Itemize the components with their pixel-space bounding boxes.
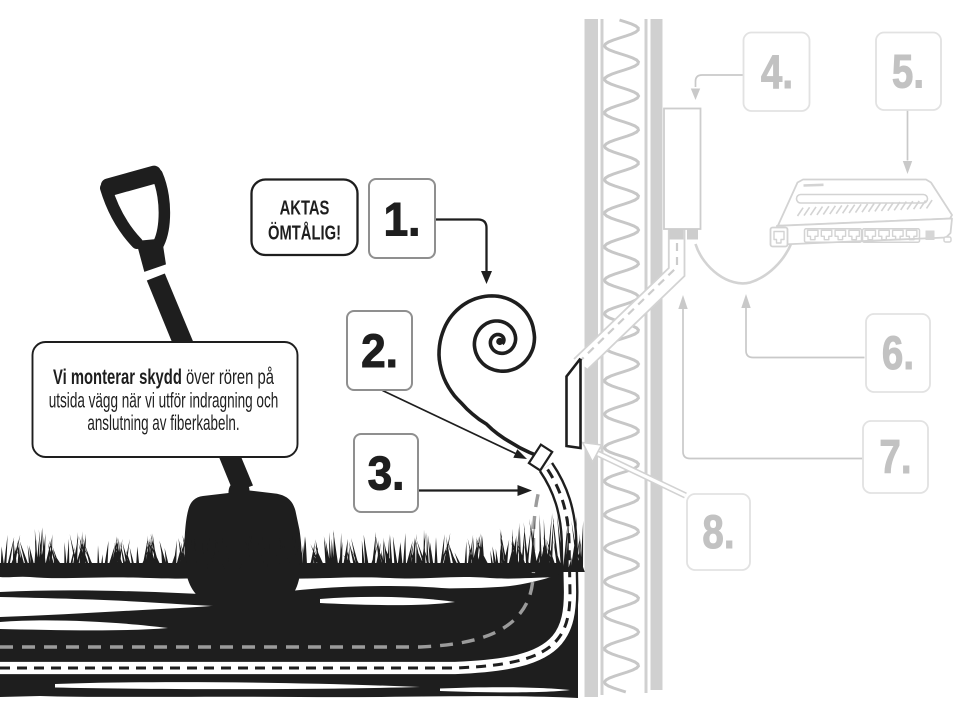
svg-text:5.: 5. [892, 46, 924, 98]
svg-text:AKTAS: AKTAS [280, 196, 330, 219]
svg-text:1.: 1. [384, 193, 421, 246]
svg-text:7.: 7. [879, 431, 911, 483]
svg-text:Vi monterar skydd över rören p: Vi monterar skydd över rören på [53, 366, 275, 389]
svg-text:ÖMTÅLIG!: ÖMTÅLIG! [268, 221, 341, 244]
svg-text:utsida vägg när vi utför indra: utsida vägg när vi utför indragning och [49, 388, 278, 412]
svg-text:8.: 8. [702, 506, 734, 558]
svg-text:2.: 2. [361, 325, 398, 378]
svg-text:3.: 3. [368, 447, 405, 500]
svg-text:4.: 4. [761, 46, 793, 98]
svg-text:6.: 6. [882, 327, 914, 379]
svg-text:anslutning av fiberkabeln.: anslutning av fiberkabeln. [87, 411, 239, 435]
